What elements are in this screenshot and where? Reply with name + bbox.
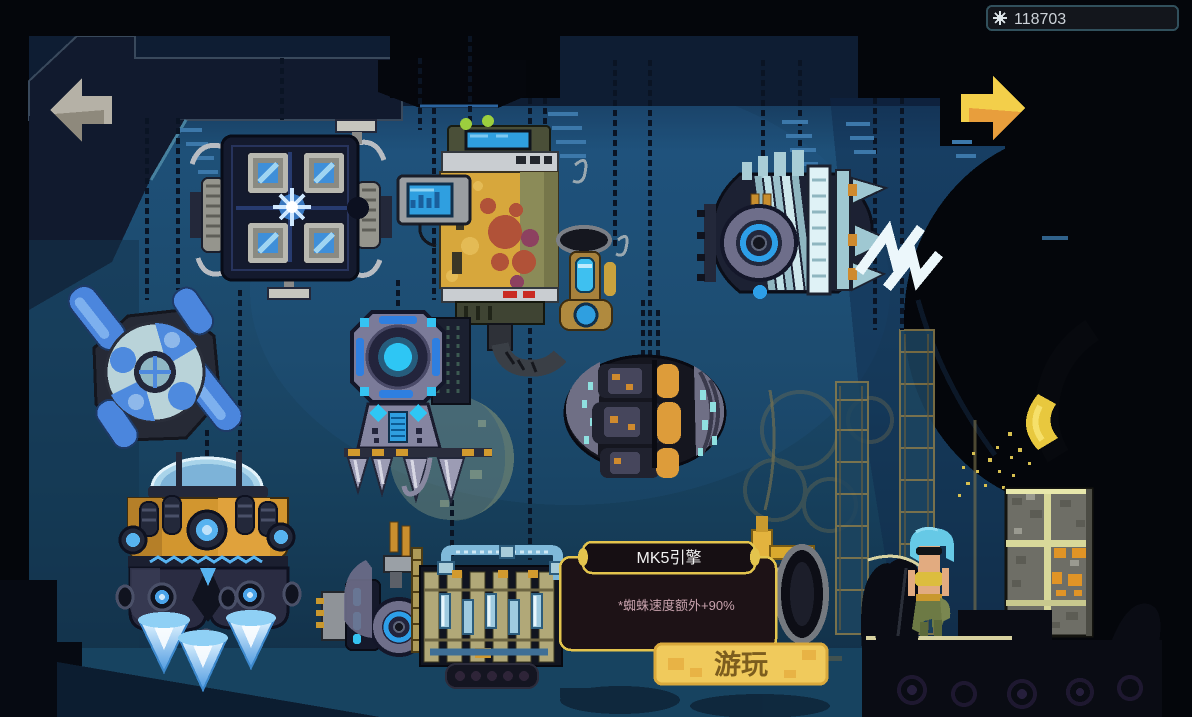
svg-text:MK5引擎: MK5引擎	[637, 549, 702, 567]
svg-text:*蜘蛛速度额外+90%: *蜘蛛速度额外+90%	[618, 598, 735, 613]
svg-text:118703: 118703	[1014, 11, 1066, 28]
svg-text:游玩: 游玩	[714, 650, 768, 680]
